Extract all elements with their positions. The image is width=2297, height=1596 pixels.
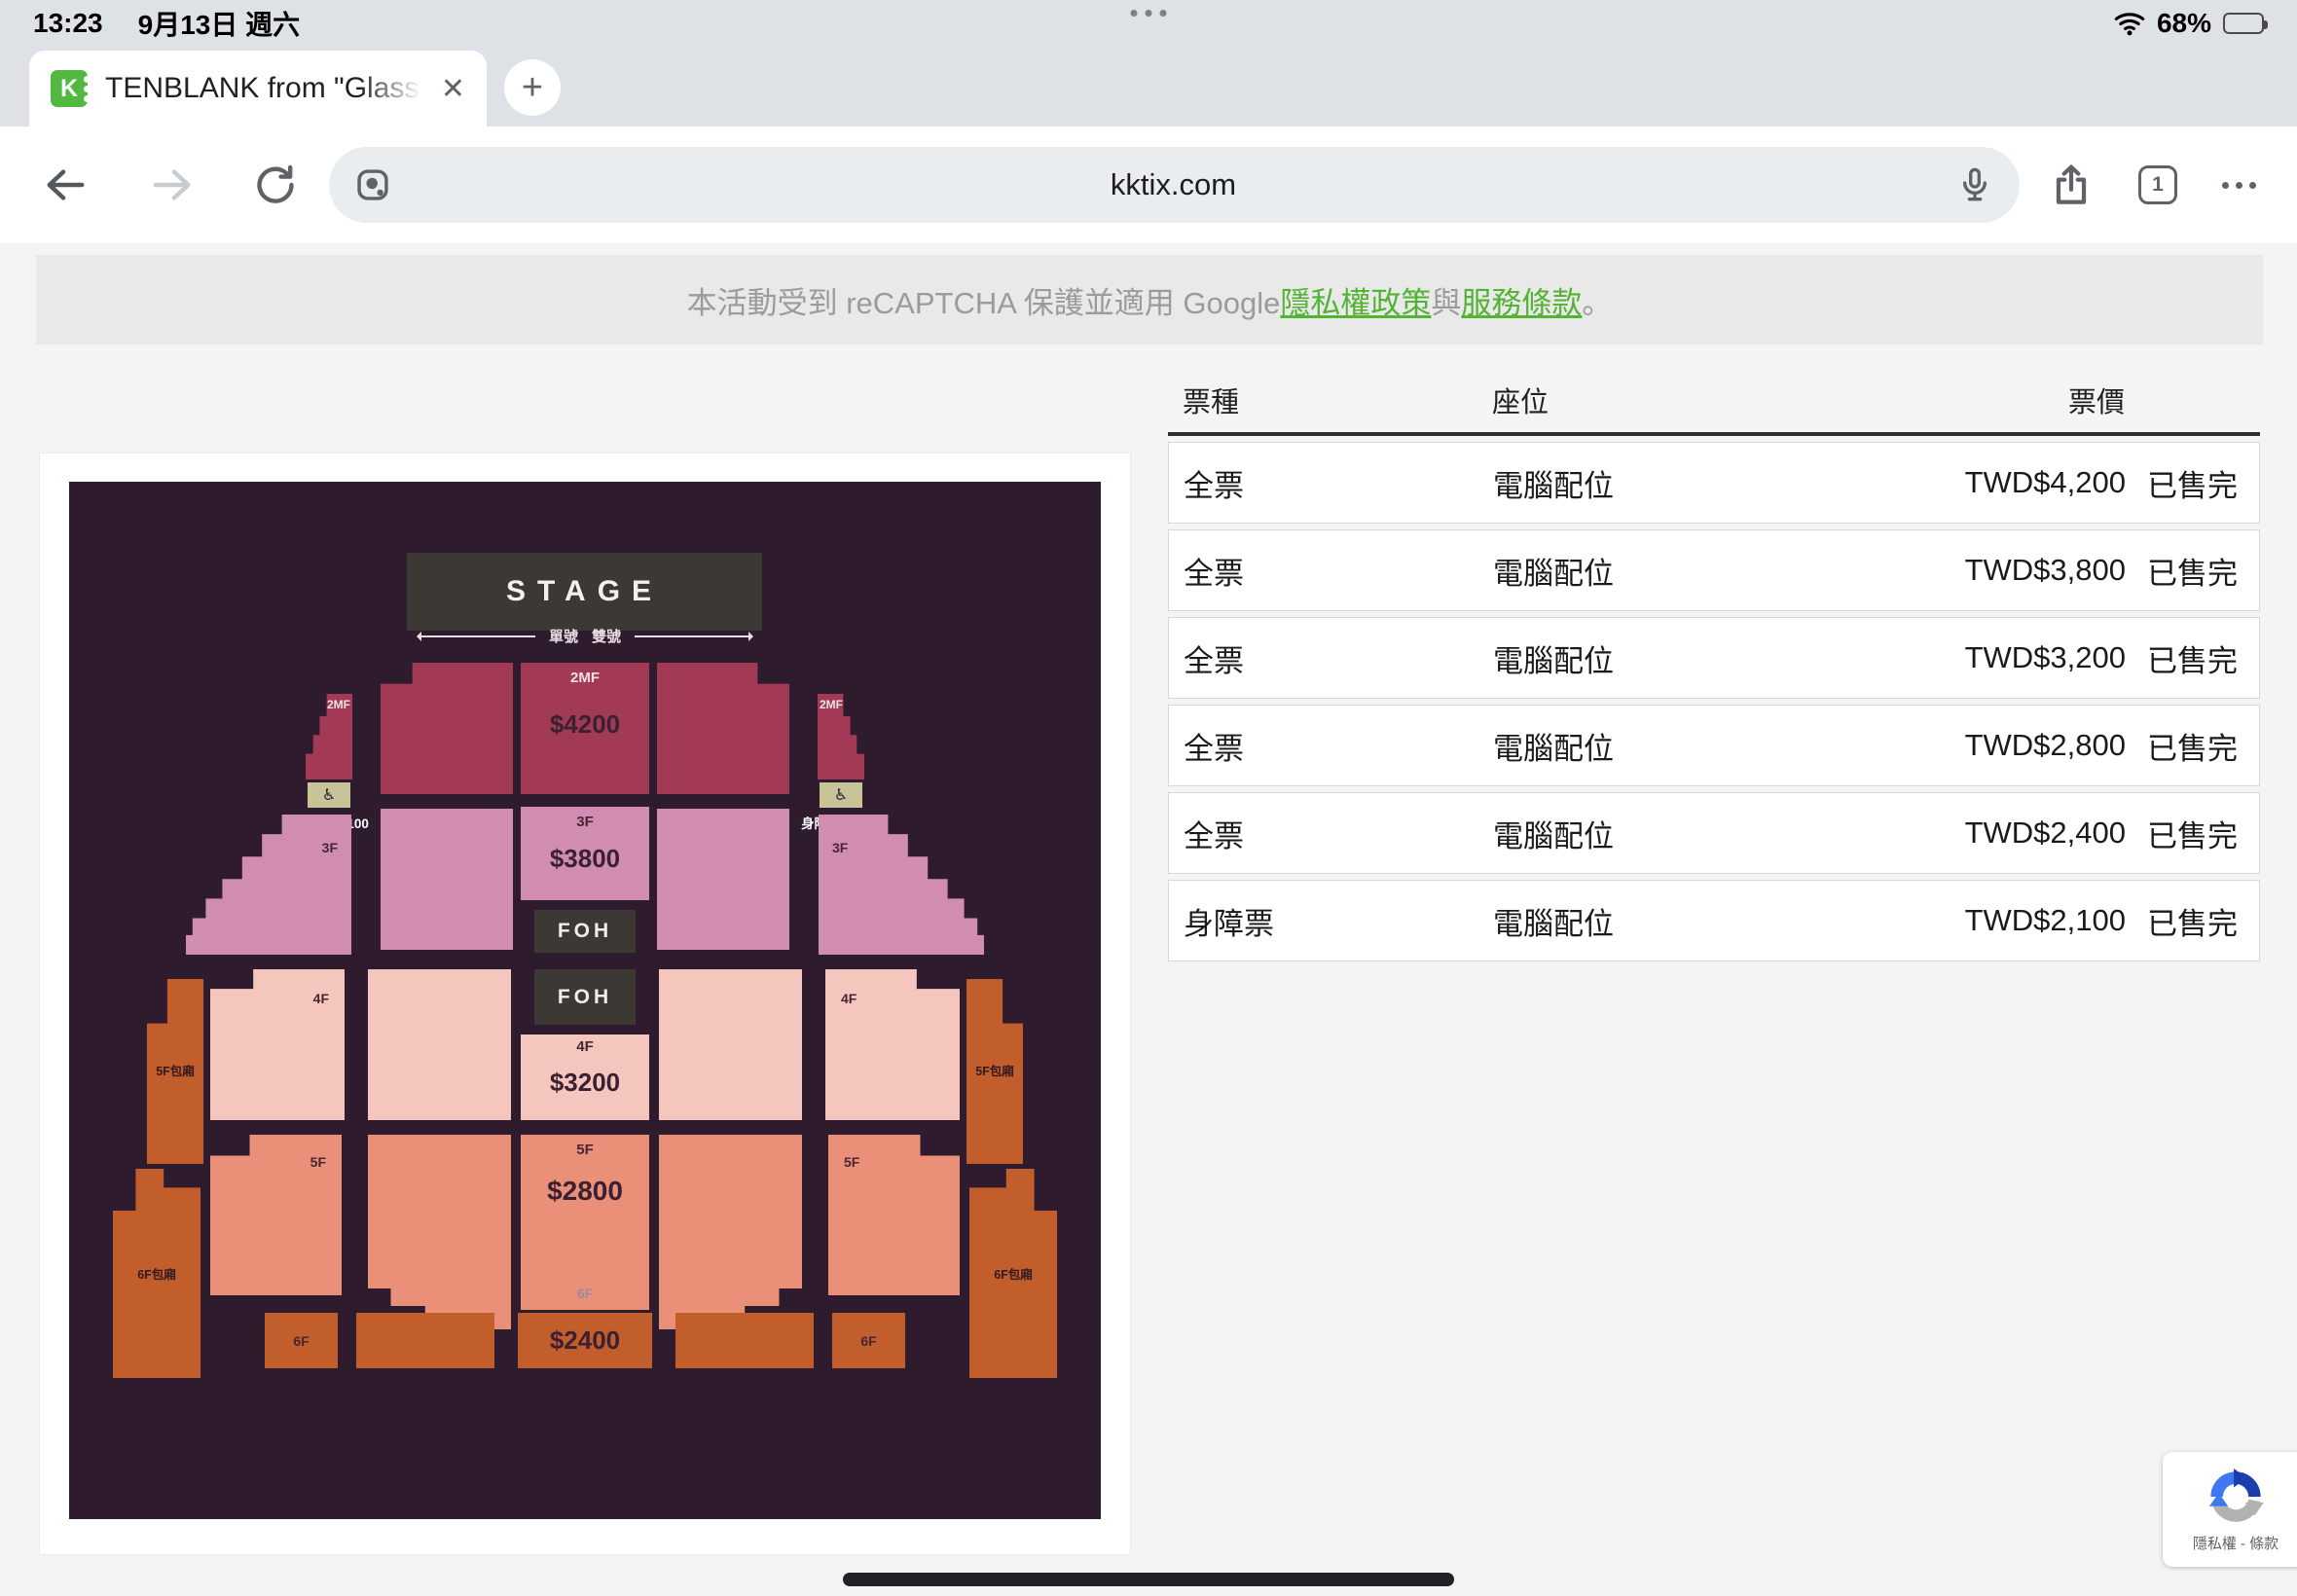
seat-6f-price: $2400 <box>550 1325 620 1356</box>
seat-3f-label: 3F <box>322 840 338 855</box>
browser-toolbar: kktix.com 1 <box>0 127 2297 243</box>
seat-3f-stair-right: 3F <box>819 815 984 955</box>
foh-box-upper: FOH <box>534 910 636 953</box>
ticket-row: 身障票 電腦配位 TWD$2,100 已售完 <box>1168 880 2260 961</box>
notice-text-prefix: 本活動受到 reCAPTCHA 保護並適用 Google <box>687 278 1281 322</box>
seat-5f-label: 5F <box>844 1154 859 1170</box>
voice-search-icon[interactable] <box>1955 165 1994 204</box>
box-5f-right: 5F包廂 <box>966 979 1023 1164</box>
box-6f-label: 6F包廂 <box>969 1264 1057 1283</box>
seat-2mf-label: 2MF <box>327 698 350 711</box>
seat-2mf-price: $4200 <box>521 709 649 740</box>
seat-5f-outer-right: 5F <box>828 1135 960 1295</box>
seat-5f-right <box>659 1135 802 1329</box>
seat-6f-label: 6F <box>293 1333 309 1349</box>
ticket-seat: 電腦配位 <box>1493 812 1814 855</box>
battery-icon <box>2223 13 2264 34</box>
status-bar: 13:23 9月13日 週六 68% <box>0 0 2297 47</box>
seat-6f-corner-left: 6F <box>265 1313 338 1368</box>
header-ticket-type: 票種 <box>1183 380 1492 420</box>
tab-close-icon[interactable]: ✕ <box>441 72 465 106</box>
address-bar[interactable]: kktix.com <box>329 147 2020 223</box>
wheelchair-icon: ♿ <box>322 785 336 805</box>
ticket-price: TWD$2,400 <box>1814 816 2126 851</box>
seat-3f-left <box>381 809 513 950</box>
seat-4f-label: 4F <box>521 1038 649 1055</box>
ticket-status: 已售完 <box>2126 549 2238 593</box>
lens-icon[interactable] <box>354 166 391 203</box>
seat-direction-row: 單號 雙號 <box>69 626 1101 646</box>
box-5f-label: 5F包廂 <box>966 1061 1023 1079</box>
screen: 13:23 9月13日 週六 68% K TENBLANK from "Glas… <box>0 0 2297 1596</box>
multitasking-indicator[interactable] <box>1131 10 1167 17</box>
ticket-price: TWD$4,200 <box>1814 465 2126 500</box>
ticket-status: 已售完 <box>2126 812 2238 855</box>
seat-4f-outer-right: 4F <box>825 969 960 1120</box>
ticket-row: 全票 電腦配位 TWD$2,800 已售完 <box>1168 705 2260 786</box>
seatmap-image: STAGE 單號 雙號 2MF 2MF $4200 2MF ♿ <box>69 482 1101 1519</box>
recaptcha-badge[interactable]: 隱私權 - 條款 <box>2163 1452 2297 1567</box>
status-date: 9月13日 週六 <box>138 4 301 43</box>
odd-number-label: 單號 <box>549 626 578 646</box>
seat-4f-right <box>659 969 802 1120</box>
battery-percent: 68% <box>2157 8 2211 39</box>
recaptcha-notice: 本活動受到 reCAPTCHA 保護並適用 Google 隱私權政策 與 服務條… <box>36 255 2263 345</box>
ticket-seat: 電腦配位 <box>1493 549 1814 593</box>
new-tab-button[interactable]: + <box>504 59 561 116</box>
seat-2mf-left <box>381 663 513 794</box>
forward-button[interactable] <box>148 161 197 209</box>
seat-4f-center: 4F $3200 <box>521 1034 649 1120</box>
ticket-type: 全票 <box>1184 549 1493 593</box>
seat-5f-label: 5F <box>521 1142 649 1158</box>
kktix-favicon-icon: K <box>51 70 88 107</box>
wifi-icon <box>2114 11 2145 36</box>
even-number-label: 雙號 <box>592 626 621 646</box>
seat-5f-label: 5F <box>310 1154 326 1170</box>
ticket-status: 已售完 <box>2126 636 2238 680</box>
notice-suffix: 。 <box>1582 278 1612 322</box>
wheelchair-box-right: ♿ <box>820 782 862 808</box>
seat-5f-price: $2800 <box>521 1176 649 1207</box>
ticket-type: 全票 <box>1184 812 1493 855</box>
seat-5f-outer-left: 5F <box>210 1135 342 1295</box>
wheelchair-box-left: ♿ <box>308 782 350 808</box>
url-text: kktix.com <box>391 167 1955 202</box>
seat-2mf-label: 2MF <box>521 670 649 686</box>
seat-2mf-right <box>657 663 789 794</box>
box-5f-left: 5F包廂 <box>147 979 203 1164</box>
seat-3f-center: 3F $3800 <box>521 807 649 900</box>
share-icon[interactable] <box>2049 163 2094 207</box>
seat-6f-left <box>356 1313 494 1368</box>
ticket-status: 已售完 <box>2126 724 2238 768</box>
seat-4f-label: 4F <box>841 991 857 1006</box>
ticket-table-header: 票種 座位 票價 <box>1168 368 2260 436</box>
ticket-status: 已售完 <box>2126 461 2238 505</box>
seat-6f-corner-right: 6F <box>832 1313 905 1368</box>
seat-6f-label: 6F <box>860 1333 876 1349</box>
seat-3f-stair-left: 3F <box>186 815 351 955</box>
seat-6f-right <box>675 1313 814 1368</box>
seat-2mf-label: 2MF <box>820 698 843 711</box>
seat-4f-label: 4F <box>313 991 329 1006</box>
ticket-price: TWD$3,800 <box>1814 553 2126 588</box>
recaptcha-badge-label: 隱私權 - 條款 <box>2193 1533 2279 1553</box>
seat-3f-right <box>657 809 789 950</box>
header-price: 票價 <box>1813 380 2125 420</box>
box-6f-right: 6F包廂 <box>969 1169 1057 1378</box>
ticket-price: TWD$2,100 <box>1814 903 2126 938</box>
foh-box-lower: FOH <box>534 969 636 1025</box>
box-6f-label: 6F包廂 <box>113 1264 201 1283</box>
ticket-row: 全票 電腦配位 TWD$3,200 已售完 <box>1168 617 2260 699</box>
seat-4f-outer-left: 4F <box>210 969 345 1120</box>
seat-6f-center: $2400 <box>518 1313 652 1368</box>
ticket-table: 票種 座位 票價 全票 電腦配位 TWD$4,200 已售完 全票 電腦配位 T… <box>1168 368 2260 961</box>
seat-3f-price: $3800 <box>521 844 649 874</box>
ticket-seat: 電腦配位 <box>1493 636 1814 680</box>
seat-6f-row-label: 6F <box>518 1286 652 1301</box>
ticket-row: 全票 電腦配位 TWD$2,400 已售完 <box>1168 792 2260 874</box>
browser-tab[interactable]: K TENBLANK from "Glass ✕ <box>29 51 487 127</box>
ticket-type: 全票 <box>1184 636 1493 680</box>
seat-3f-label: 3F <box>832 840 848 855</box>
tab-title: TENBLANK from "Glass <box>105 72 431 105</box>
ticket-price: TWD$3,200 <box>1814 640 2126 675</box>
terms-link[interactable]: 服務條款 <box>1461 278 1582 322</box>
ticket-row: 全票 電腦配位 TWD$4,200 已售完 <box>1168 442 2260 524</box>
reload-button[interactable] <box>251 161 300 209</box>
seat-4f-price: $3200 <box>521 1068 649 1098</box>
ticket-type: 全票 <box>1184 461 1493 505</box>
seatmap-card: STAGE 單號 雙號 2MF 2MF $4200 2MF ♿ <box>39 453 1131 1555</box>
ticket-type: 全票 <box>1184 724 1493 768</box>
back-button[interactable] <box>41 161 90 209</box>
box-5f-label: 5F包廂 <box>147 1061 203 1079</box>
tab-switcher-button[interactable]: 1 <box>2138 165 2177 204</box>
home-indicator[interactable] <box>843 1573 1454 1586</box>
ticket-seat: 電腦配位 <box>1493 724 1814 768</box>
ticket-seat: 電腦配位 <box>1493 461 1814 505</box>
clock: 13:23 <box>33 8 103 39</box>
seat-3f-label: 3F <box>521 814 649 830</box>
ticket-row: 全票 電腦配位 TWD$3,800 已售完 <box>1168 529 2260 611</box>
ticket-price: TWD$2,800 <box>1814 728 2126 763</box>
privacy-policy-link[interactable]: 隱私權政策 <box>1280 278 1431 322</box>
box-6f-left: 6F包廂 <box>113 1169 201 1378</box>
seat-2mf-mini-left: 2MF <box>306 694 352 780</box>
header-seat: 座位 <box>1492 380 1813 420</box>
seat-5f-center: 5F $2800 <box>521 1135 649 1310</box>
seat-5f-left <box>368 1135 511 1329</box>
ticket-type: 身障票 <box>1184 899 1493 943</box>
notice-conjunction: 與 <box>1431 278 1461 322</box>
recaptcha-logo-icon <box>2206 1467 2266 1527</box>
overflow-menu-button[interactable] <box>2222 182 2256 189</box>
seat-4f-left <box>368 969 511 1120</box>
ticket-seat: 電腦配位 <box>1493 899 1814 943</box>
seat-2mf-mini-right: 2MF <box>818 694 864 780</box>
ticket-status: 已售完 <box>2126 899 2238 943</box>
seat-2mf-center: 2MF $4200 <box>521 663 649 794</box>
wheelchair-icon: ♿ <box>834 785 848 805</box>
stage-block: STAGE <box>407 553 762 631</box>
